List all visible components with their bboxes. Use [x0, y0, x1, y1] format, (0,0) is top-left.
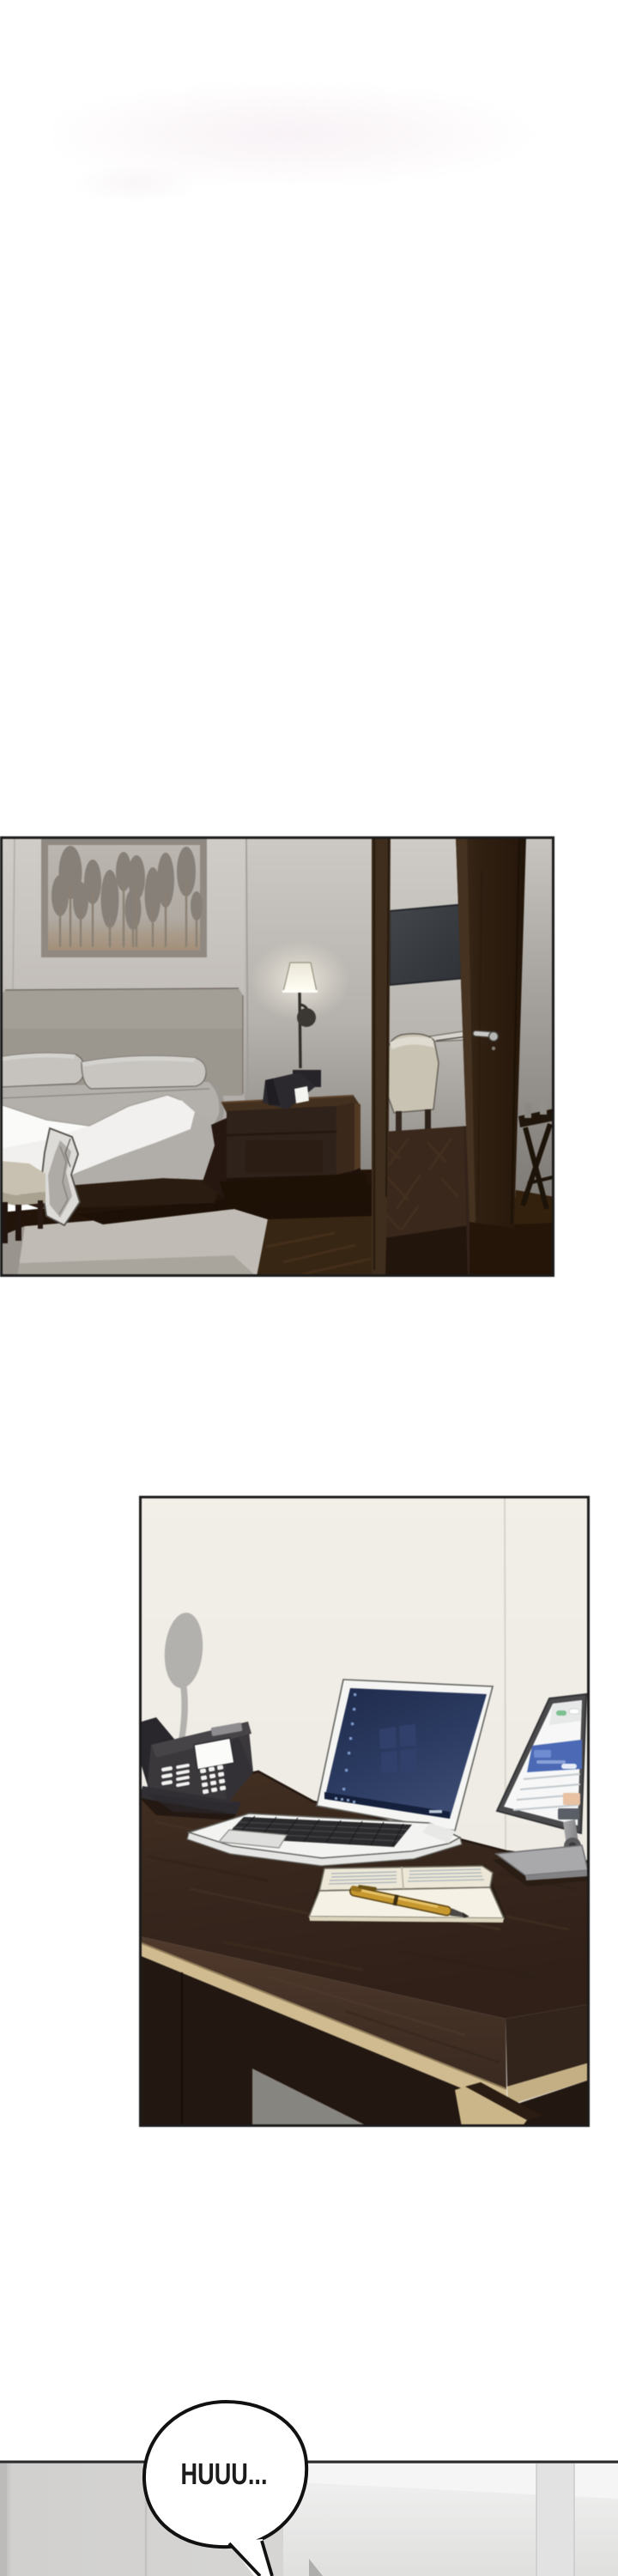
svg-text:HUUU...: HUUU...	[181, 2458, 268, 2491]
